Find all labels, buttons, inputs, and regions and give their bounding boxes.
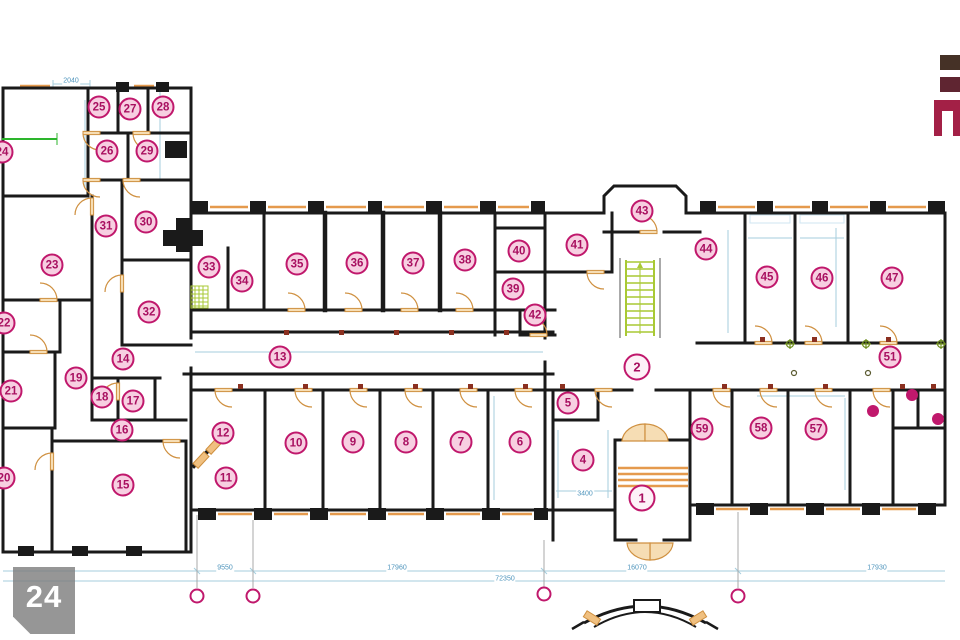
logo-bar-icon (940, 55, 960, 70)
wall-piers (18, 82, 945, 556)
floor-plan-drawing (0, 0, 960, 640)
floor-plan-page: 1245678910111213141516171819202122232425… (0, 0, 960, 640)
page-number: 24 (26, 579, 62, 615)
site-logo (938, 55, 960, 139)
logo-bar-icon (940, 77, 960, 92)
walls (3, 88, 945, 552)
frame-markers (238, 330, 936, 389)
window-lines (3, 86, 945, 552)
hatch-grid (191, 286, 208, 308)
staircase (620, 258, 660, 338)
page-number-badge: 24 (13, 567, 75, 634)
green-reference-line (2, 133, 57, 145)
entrance-porch (572, 600, 718, 629)
logo-mark-icon (934, 100, 960, 136)
